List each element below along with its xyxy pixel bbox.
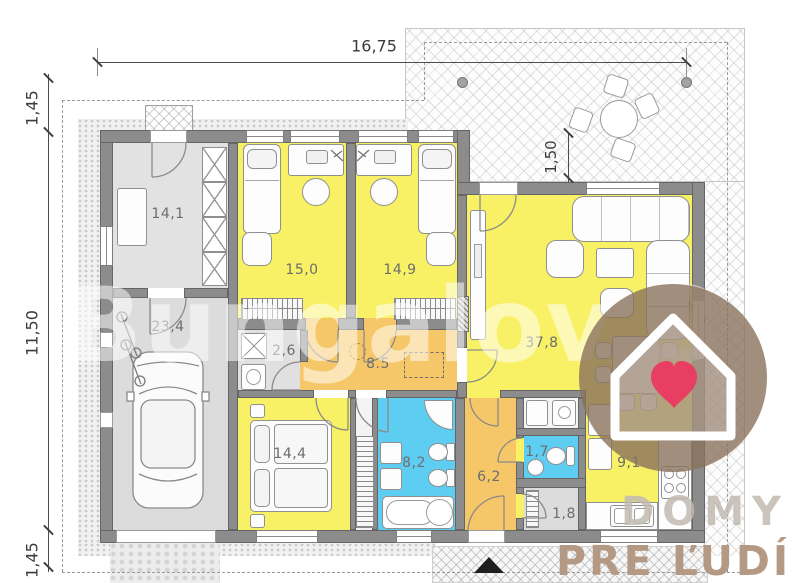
area-label-wc: 1,7 <box>525 444 549 460</box>
area-label-technical: 14,1 <box>151 206 184 222</box>
area-label-bedroom-bottom: 14,4 <box>273 446 306 462</box>
dimension-left-overhang-bottom: 1,45 <box>23 542 42 578</box>
area-label-bathroom: 8,2 <box>402 455 426 471</box>
dimension-left-overhang-top: 1,45 <box>23 90 42 126</box>
brand-logo <box>577 282 769 474</box>
floor-plan-canvas: 14,1 23,4 15,0 14,9 2,6 8.5 37,8 14,4 8,… <box>0 0 800 583</box>
entrance-arrow-icon <box>474 557 504 573</box>
dimension-terrace-depth: 1,50 <box>542 140 560 173</box>
brand-word-domy: DOMY <box>621 489 789 535</box>
dimension-top-width: 16,75 <box>351 37 397 56</box>
dimension-left-height: 11,50 <box>23 310 42 356</box>
area-label-storage: 1,8 <box>552 506 576 522</box>
area-label-hall-entry: 6,2 <box>477 469 501 485</box>
brand-word-pre-ludi: PRE ĽUDÍ <box>556 537 791 583</box>
